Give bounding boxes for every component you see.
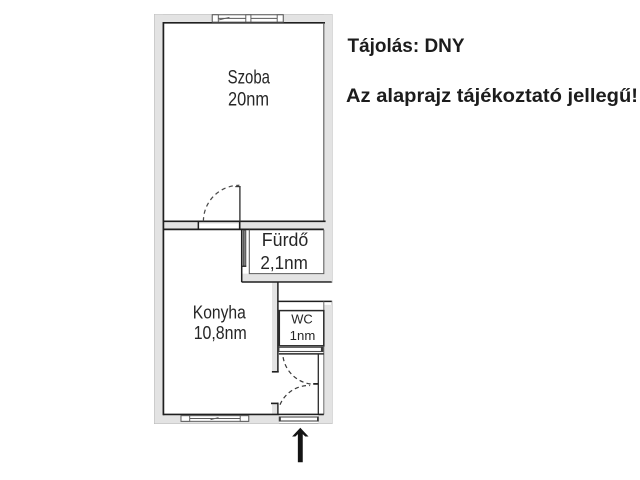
svg-text:Tájolás: DNY: Tájolás: DNY xyxy=(348,36,465,57)
svg-text:1nm: 1nm xyxy=(290,329,316,343)
svg-text:2,1nm: 2,1nm xyxy=(260,252,308,273)
svg-text:Fürdő: Fürdő xyxy=(262,229,309,250)
svg-text:Az alaprajz tájékoztató jelleg: Az alaprajz tájékoztató jellegű! xyxy=(346,86,638,107)
svg-text:WC: WC xyxy=(291,312,313,327)
svg-text:20nm: 20nm xyxy=(228,89,269,111)
svg-text:Szoba: Szoba xyxy=(228,67,271,89)
svg-text:10,8nm: 10,8nm xyxy=(194,323,247,343)
svg-text:Konyha: Konyha xyxy=(193,302,247,322)
